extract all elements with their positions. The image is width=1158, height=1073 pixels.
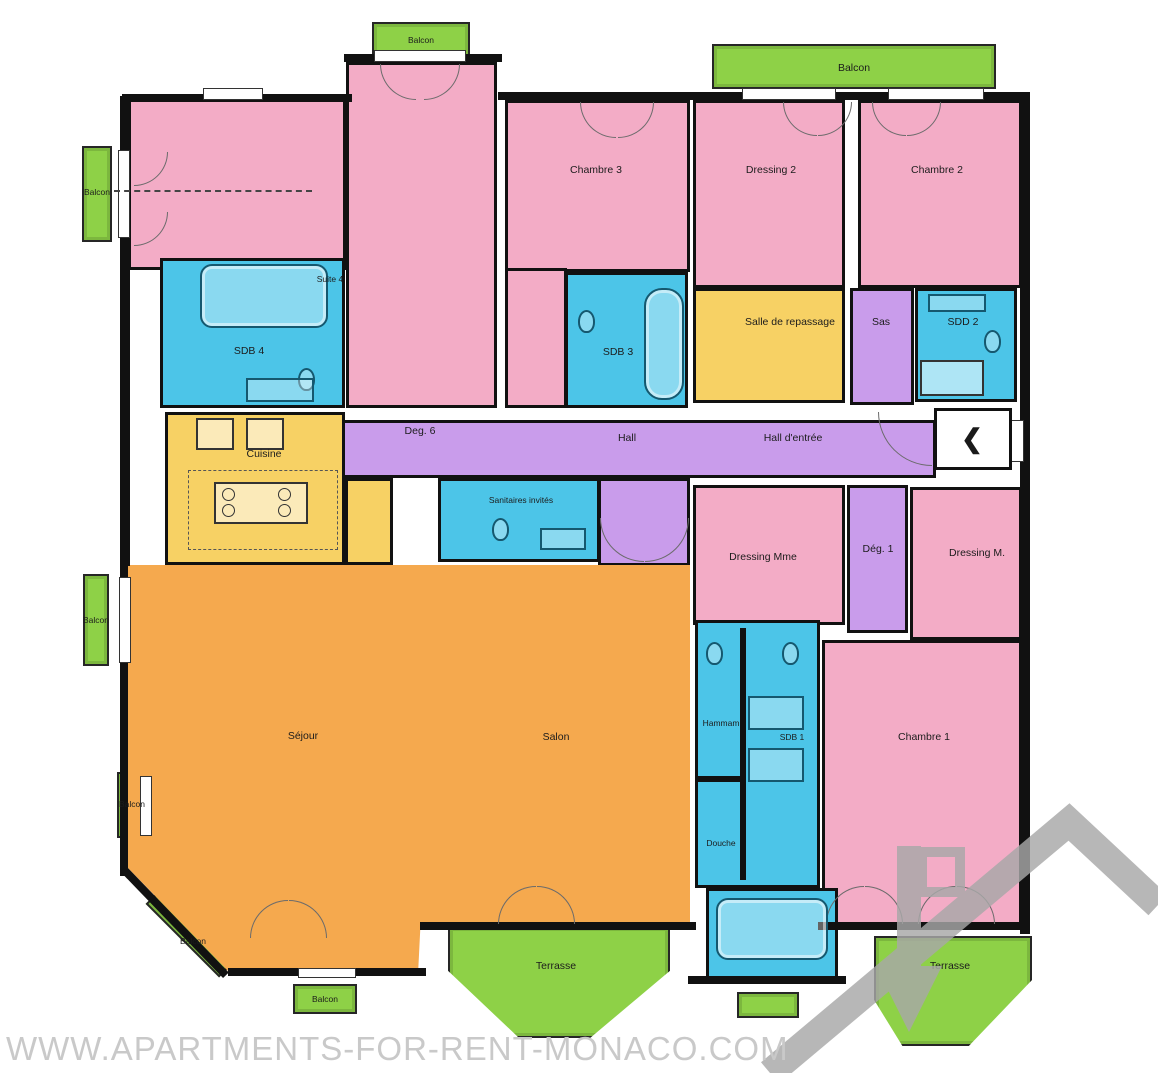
wall-segment <box>697 776 741 782</box>
sink-icon <box>540 528 586 550</box>
label-balcon: Balcon <box>180 936 206 946</box>
room-dressing-m <box>910 487 1022 640</box>
label-dressing-m: Dressing M. <box>949 547 1005 559</box>
label-sanitaires: Sanitaires invités <box>489 495 553 505</box>
room-suite4 <box>346 62 497 408</box>
label-deg1: Dég. 1 <box>863 543 894 555</box>
shower-icon <box>920 360 984 396</box>
label-chambre3: Chambre 3 <box>570 164 622 176</box>
wall-segment <box>688 976 846 984</box>
toilet-icon <box>984 330 1001 353</box>
room-cuisine-ext <box>345 478 393 565</box>
label-chambre1: Chambre 1 <box>898 731 950 743</box>
label-balcon: Balcon <box>838 62 870 74</box>
window <box>203 88 263 100</box>
wall-segment <box>740 628 746 880</box>
label-hammam: Hammam <box>703 718 740 728</box>
window <box>742 88 836 100</box>
label-sdb3: SDB 3 <box>603 346 633 358</box>
label-terrasse: Terrasse <box>536 960 576 972</box>
bathtub-icon <box>644 288 684 400</box>
terrace-right <box>874 936 1032 1046</box>
window <box>888 88 984 100</box>
bathtub-icon <box>716 898 828 960</box>
room-chambre2 <box>858 100 1022 288</box>
vanity-icon <box>748 696 804 730</box>
burner-icon <box>222 504 235 517</box>
label-deg6: Deg. 6 <box>405 425 436 437</box>
entrance-arrow-icon: ❮ <box>961 424 983 455</box>
label-balcon: Balcon <box>408 35 434 45</box>
sink-icon <box>928 294 986 312</box>
room-deg1 <box>847 485 908 633</box>
floor-plan: ❮ Balcon Balcon Bal <box>0 0 1158 1073</box>
toilet-icon <box>492 518 509 541</box>
label-sas: Sas <box>872 316 890 328</box>
label-chambre2: Chambre 2 <box>911 164 963 176</box>
label-salon: Salon <box>543 731 570 743</box>
burner-icon <box>278 504 291 517</box>
label-douche: Douche <box>706 838 735 848</box>
room-suite4-west <box>128 98 346 270</box>
label-dressing-mme: Dressing Mme <box>729 551 797 563</box>
label-cuisine: Cuisine <box>246 448 281 460</box>
label-balcon: Balcon <box>312 994 338 1004</box>
terrace-center <box>448 926 670 1038</box>
sightline-dashed <box>114 190 312 192</box>
toilet-icon <box>706 642 723 665</box>
label-balcon: Balcon <box>119 799 145 809</box>
label-sdb4: SDB 4 <box>234 345 264 357</box>
label-terrasse: Terrasse <box>930 960 970 972</box>
room-chambre1 <box>822 640 1022 930</box>
window <box>298 968 356 978</box>
balcony-bath-small <box>737 992 799 1018</box>
burner-icon <box>222 488 235 501</box>
window <box>374 50 466 62</box>
vanity-icon <box>748 748 804 782</box>
label-salle-repassage: Salle de repassage <box>745 316 835 328</box>
bathtub-icon <box>200 264 328 328</box>
sink-icon <box>246 378 314 402</box>
label-sdd2: SDD 2 <box>948 316 979 328</box>
watermark-text: WWW.APARTMENTS-FOR-RENT-MONACO.COM <box>6 1030 789 1068</box>
label-sdb1: SDB 1 <box>780 732 805 742</box>
wall-segment <box>1020 96 1030 934</box>
appliance-icon <box>196 418 234 450</box>
label-hall: Hall <box>618 432 636 444</box>
room-salle-repassage <box>693 288 845 403</box>
toilet-icon <box>782 642 799 665</box>
label-balcon: Balcon <box>84 187 110 197</box>
toilet-icon <box>578 310 595 333</box>
label-hall-entree: Hall d'entrée <box>764 432 823 444</box>
appliance-icon <box>246 418 284 450</box>
label-sejour: Séjour <box>288 730 318 742</box>
door-arc <box>818 102 852 136</box>
label-balcon: Balcon <box>83 615 109 625</box>
burner-icon <box>278 488 291 501</box>
window <box>119 577 131 663</box>
room-sejour-salon <box>128 565 690 975</box>
room-sas <box>850 288 914 405</box>
room-chambre3-strip <box>505 268 567 408</box>
label-suite4: Suite 4 <box>317 274 343 284</box>
window <box>118 150 130 238</box>
label-dressing2: Dressing 2 <box>746 164 796 176</box>
